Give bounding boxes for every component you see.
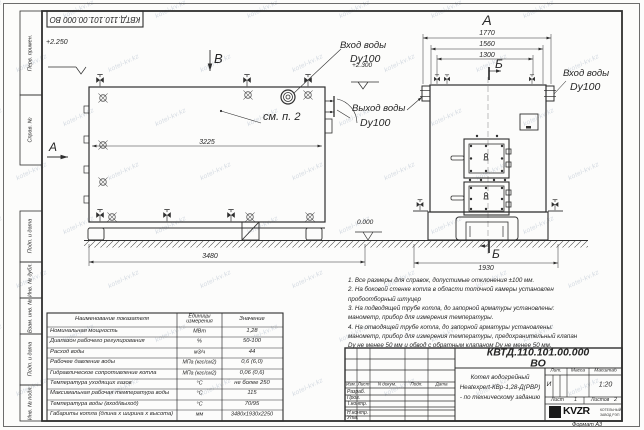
role-razrab: Разраб.: [347, 390, 365, 395]
note-line: пробоотборный штуцер: [348, 297, 421, 303]
note-line: 2. На боковой стенке котла в области топ…: [348, 287, 554, 293]
param-value: 0,06 (0,6): [240, 371, 265, 377]
margin-sprav-no: Справ. №: [28, 118, 34, 143]
param-name: Гидравлическое сопротивление котла: [50, 371, 157, 377]
margin-inv-dubl: Инв. № дубл.: [28, 263, 34, 297]
kvzr-logo-sub2: ЗАВОД РЭП: [600, 414, 619, 417]
inlet-water-right-label: Вход воды: [563, 69, 609, 79]
boiler-front-view: [413, 75, 563, 255]
param-unit: %: [197, 339, 202, 345]
margin-inv-podl: Инв. № подл.: [28, 386, 34, 420]
dim-1560-label: 1560: [479, 41, 495, 48]
left-flange: [420, 86, 430, 101]
dim-1300-label: 1300: [479, 52, 495, 59]
param-name: Диапазон рабочего регулирования: [50, 339, 145, 345]
role-prov: Пров.: [347, 396, 360, 401]
param-unit: °С: [196, 381, 202, 387]
param-value: 44: [249, 350, 255, 356]
param-value: 1,28: [246, 329, 257, 335]
margin-podp-data-1: Подп. и дата: [28, 219, 34, 253]
param-value: 3480х1930х2250: [231, 412, 273, 418]
param-name: Максимальная рабочая температура воды: [50, 391, 169, 397]
outlet-water-dn: Dy100: [360, 118, 390, 129]
dim-1930-label: 1930: [478, 265, 494, 272]
elevation-0000-label: 0.000: [357, 220, 373, 227]
param-unit: МПа (кгс/см2): [183, 360, 217, 365]
note-line: манометр, прибор для измерения температу…: [348, 334, 577, 340]
sheet-value: 1: [574, 398, 577, 404]
param-unit: МВт: [193, 329, 206, 335]
lit-value: И: [547, 382, 552, 389]
margin-perv-primen: Перв. примен.: [28, 35, 34, 72]
rev-col-data: Дата: [435, 383, 447, 388]
kvzr-logo-sub1: КОТЕЛЬНЫЙ: [600, 409, 621, 412]
param-header-value: Значение: [239, 317, 264, 323]
skid-base: [88, 222, 325, 240]
top-stamp-number: КВТД.110.101.00.000 ВО: [50, 15, 141, 23]
view-b-label: В: [214, 52, 223, 65]
scale-header: Масштаб: [594, 369, 616, 374]
section-b-bottom-label: Б: [492, 248, 500, 260]
param-name: Рабочее давление воды: [50, 360, 115, 366]
param-name: Температура уходящих газов: [50, 381, 132, 387]
note-line: 4. На отводящей трубе котла, до запорной…: [348, 325, 553, 331]
param-unit: °С: [196, 391, 202, 397]
sheet-label: Лист: [551, 398, 564, 403]
format-label: Формат А3: [572, 423, 602, 429]
product-name-line1: Котел водогрейный: [471, 375, 530, 381]
param-value: 50-100: [243, 339, 261, 345]
titleblock-doc-number: КВТД.110.101.00.000 ВО: [485, 348, 591, 369]
section-b-top-label: Б: [495, 58, 503, 70]
param-unit: мм: [196, 412, 204, 418]
callout-see-p2: см. п. 2: [263, 112, 300, 123]
param-unit: м3/ч: [194, 350, 205, 356]
param-header-name: Наименование показателя: [75, 317, 149, 323]
scale-value: 1:20: [599, 382, 613, 389]
upper-door: [451, 135, 511, 178]
param-name: Расход воды: [50, 350, 84, 356]
param-unit: °С: [196, 402, 202, 408]
margin-podp-data-2: Подп. и дата: [28, 342, 34, 376]
kvzr-logo-text: KVZR: [563, 406, 590, 417]
outlet-nozzle: [325, 96, 357, 133]
lit-header: Лит.: [550, 369, 561, 374]
inlet-flange-icon: [281, 90, 295, 104]
view-a-label: А: [482, 13, 491, 27]
sheets-value: 2: [614, 398, 617, 404]
drawing-sheet: kotel-kv.kzkotel-kv.kzkotel-kv.kzkotel-k…: [0, 0, 644, 430]
product-name-line2: Heatexpert-КВр-1,28-Д(РВР): [460, 385, 541, 391]
kvzr-logo-mark: [549, 406, 561, 418]
role-utv: Утв.: [347, 416, 358, 421]
rev-col-podp: Подп.: [410, 383, 422, 388]
inlet-water-label: Вход воды: [340, 41, 386, 51]
rev-col-dokum: N докум.: [378, 383, 397, 388]
role-tkontr: Т.контр.: [347, 402, 367, 407]
param-value: 0,6 (6,0): [241, 360, 263, 366]
outlet-water-label: Выход воды: [352, 104, 405, 114]
dim-3225-label: 3225: [199, 139, 215, 146]
param-value: 115: [247, 391, 256, 397]
note-line: манометр, прибор для измерения температу…: [348, 315, 493, 321]
elevation-2300-label: +2.300: [352, 63, 372, 70]
margin-vzam-inv: Взам. инв. №: [28, 299, 34, 333]
param-value: 70/95: [245, 402, 260, 408]
dim-1770-label: 1770: [479, 30, 495, 37]
rev-col-list: Лист: [358, 383, 370, 388]
param-name: Температура воды (вход/выход): [50, 402, 139, 408]
note-line: 3. На подводящей трубе котла, до запорно…: [348, 306, 554, 312]
ground-hatch: [84, 241, 588, 248]
boiler-side-view: [84, 75, 357, 240]
param-unit: МПа (кгс/см2): [183, 371, 217, 376]
param-header-units: Единицы измерения: [180, 315, 220, 326]
product-name-line3: - по техническому заданию: [460, 395, 540, 401]
param-name: Габариты котла (длина х ширина х высота): [50, 412, 173, 418]
inlet-water-right-dn: Dy100: [570, 82, 600, 93]
sheets-label: Листов: [591, 398, 609, 403]
lower-door: [451, 179, 511, 215]
mass-header: Масса: [571, 369, 585, 374]
elevation-2250-label: +2.250: [46, 39, 68, 46]
note-line: 1. Все размеры для справок, допустимые о…: [348, 278, 534, 284]
dim-3480-label: 3480: [202, 253, 218, 260]
param-value: не более 250: [234, 381, 269, 387]
rev-col-izm: Изм.: [346, 383, 356, 388]
section-a-label: А: [49, 141, 57, 153]
param-name: Номинальная мощность: [50, 329, 118, 335]
